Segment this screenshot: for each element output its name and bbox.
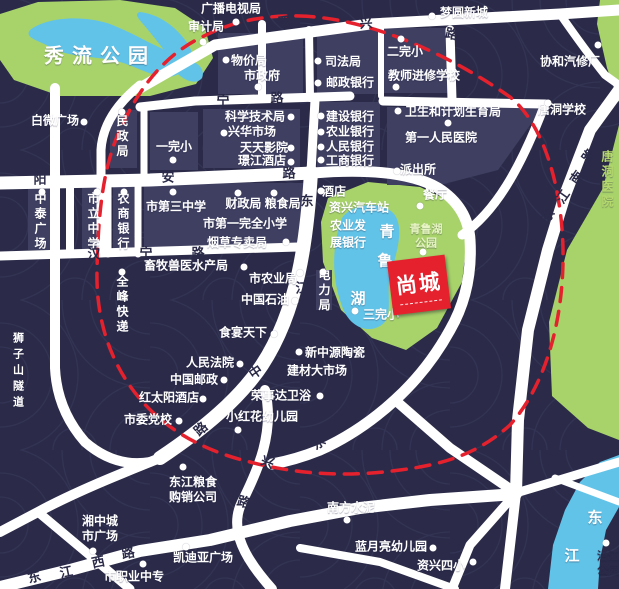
label-hongtaiyang-hotel: 红太阳酒店 [139,391,199,406]
label-jiudian: 酒店 [322,185,346,200]
road-name-char-晋-0: 晋 [276,11,292,32]
shangcheng-logo-badge: 尚城 [387,255,451,316]
road-name-char-路-18: 路 [120,542,136,563]
road-name-char-路-4: 路 [270,88,283,107]
road-name-char-路-14: 路 [189,417,211,440]
poi-dot-42 [237,361,244,368]
label-zixing-no4-primary: 资兴四小 [417,559,465,574]
poi-dot-24 [318,157,325,164]
label-kaidiya-plaza: 凯迪亚广场 [173,551,233,566]
label-shiwei-dangxiao: 市委党校 [124,413,172,428]
poi-dot-1 [200,39,207,46]
poi-dot-46 [296,349,303,356]
shangcheng-logo-text: 尚城 [394,265,443,300]
poi-dot-26 [94,189,101,196]
poi-dot-36 [320,269,327,276]
road-name-char-路-10: 路 [191,243,204,262]
poi-dot-52 [140,561,147,568]
road-name-char-安-6: 安 [161,167,174,186]
poi-dot-3 [81,119,88,126]
label-weisheng-jihua: 卫生和计划生育局 [405,105,501,120]
poi-dot-29 [235,190,242,197]
label-river-char-dong: 东 [587,510,602,529]
label-shizhiye-zhongzhuan: 市职业中专 [104,570,164,585]
road-name-char-宁-9: 宁 [139,243,152,262]
road-name-char-江-16: 江 [58,560,75,581]
label-xiehe-qixiuchang: 协和汽修厂 [540,55,600,70]
poi-dot-38 [352,308,359,315]
label-zhanyinhang: 展银行 [330,236,366,251]
road-name-char-中-13: 中 [244,359,266,382]
label-no1-primary: 市第一完全小学 [203,217,287,232]
label-shizhengfu: 市政府 [244,69,280,84]
label-shi-nongyeju: 市农业局 [249,272,297,287]
label-mengyuan-xincheng: 梦圆新城 [440,6,488,21]
label-rongshida-weiyu: 荣事达卫浴 [251,389,311,404]
label-lake-char-qing: 青 [379,224,394,243]
label-xiaohonghua-kindergarten: 小红花幼儿园 [226,410,298,425]
road-name-char-东-11: 东 [300,191,313,210]
poi-dot-34 [297,270,304,277]
road-name-char-江-21: 江 [550,185,573,207]
poi-dot-56 [603,540,610,547]
label-renmin-court: 人民法院 [186,356,234,371]
road-name-char-汉-8: 汉 [87,244,100,263]
poi-dot-0 [233,19,240,26]
road-name-char-路-2: 路 [444,22,461,43]
label-wujiaju: 物价局 [231,54,267,69]
label-xinzhongyuan-taoci: 新中源陶瓷 [305,346,365,361]
label-erwanxiao: 二完小 [387,45,423,60]
poi-dot-7 [255,84,262,91]
poi-dot-20 [288,159,295,166]
poi-dot-22 [318,129,325,136]
poi-dot-5 [170,157,177,164]
label-shizishan-tunnel: 狮子山隧道 [12,332,23,412]
poi-dot-30 [271,190,278,197]
poi-dot-21 [318,113,325,120]
road-name-char-路-19: 路 [576,144,599,166]
label-nongshang-bank: 农商银行 [117,192,129,252]
label-nongyefa: 农业发 [330,219,366,234]
road-name-char-路-24: 路 [235,490,252,512]
poi-dot-17 [288,114,295,121]
poi-dot-54 [430,545,437,552]
road-name-char-东-25: 东 [307,430,329,453]
label-yiwanxiao: 一完小 [156,140,192,155]
road-name-char-江-12: 江 [295,278,308,297]
label-yanjiang-park: 沿江 公园 [597,550,619,578]
label-nongye-bank: 农业银行 [326,125,374,140]
poi-dot-4 [119,109,126,116]
poi-dot-49 [180,464,187,471]
city-map: 秀流公园广播电视局审计局梦圆新城物价局市政府司法局邮政银行二完小教师进修学校协和… [0,0,619,589]
label-xiuliu-park: 秀流公园 [44,45,156,70]
poi-dot-27 [121,189,128,196]
poi-dot-47 [317,393,324,400]
label-zhongguo-shiyou: 中国石油 [241,293,289,308]
poi-dot-43 [221,377,228,384]
label-quanfeng-express: 全峰快递 [116,275,128,335]
label-xinghua-market: 兴华市场 [228,125,276,140]
label-paichusuo: 派出所 [400,163,436,178]
label-river-char-jiang: 江 [564,548,579,567]
label-zixing-bus-station: 资兴汽车站 [329,201,389,216]
label-jingjiang-hotel: 璟江酒店 [238,154,286,169]
poi-dot-28 [170,189,177,196]
poi-dot-31 [283,239,290,246]
poi-dot-18 [221,130,228,137]
road-name-char-兴-1: 兴 [359,12,373,32]
poi-dot-2 [429,13,436,20]
poi-dot-13 [545,100,552,107]
poi-dot-15 [445,120,452,127]
label-shiyan-tianxia: 食宴天下 [219,326,267,341]
poi-dot-16 [394,168,401,175]
label-xumu-shouyi: 畜牧兽医水产局 [144,259,228,274]
poi-dot-50 [90,548,97,555]
label-gongshang-bank: 工商银行 [326,154,374,169]
label-sifaju: 司法局 [325,55,361,70]
poi-dot-55 [470,559,477,566]
poi-dot-33 [119,269,126,276]
poi-dot-9 [315,80,322,87]
poi-dot-41 [417,203,424,210]
poi-dot-14 [395,108,402,115]
label-no3-middle-school: 市第三中学 [146,200,206,215]
poi-dot-12 [595,42,602,49]
poi-dot-44 [200,396,207,403]
label-tangdong-hospital: 唐洞医院 [601,150,613,210]
road-name-char-兴-23: 兴 [259,450,278,472]
poi-dot-6 [223,57,230,64]
label-jianshe-bank: 建设银行 [326,110,374,125]
label-jiaoshi-school: 教师进修学校 [388,69,460,84]
label-diyi-hospital: 第一人民医院 [405,131,477,146]
poi-dot-45 [176,418,183,425]
label-renmin-bank: 人民银行 [326,140,374,155]
label-xiangzhong-plaza: 湘中城 市广场 [82,514,118,544]
label-dongjiang-grain: 东江粮食 购销公司 [169,475,217,505]
label-baiwei-plaza: 白微广场 [31,114,79,129]
poi-dot-53 [344,517,351,524]
poi-dot-51 [183,544,190,551]
poi-dot-8 [315,58,322,65]
poi-dot-35 [292,298,299,305]
poi-dot-37 [271,331,278,338]
poi-dot-11 [393,84,400,91]
label-yancao-zhuanmaiju: 烟草专卖局 [207,236,267,251]
label-guangbo-dianshiju: 广播电视局 [201,2,261,17]
road-name-char-东-15: 东 [25,565,42,587]
labels-layer: 秀流公园广播电视局审计局梦圆新城物价局市政府司法局邮政银行二完小教师进修学校协和… [0,0,619,589]
road-name-char-东-22: 东 [535,204,558,226]
poi-dot-25 [39,189,46,196]
poi-dot-39 [318,188,325,195]
label-canting: 餐厅 [423,188,447,203]
poi-dot-19 [288,145,295,152]
label-lanyueliang-kindergarten: 蓝月亮幼儿园 [355,540,427,555]
poi-dot-48 [235,427,242,434]
poi-dot-40 [420,249,427,256]
shangcheng-logo-subline [400,299,442,305]
label-qingluhu-park: 青鲁湖 公园 [410,223,443,251]
poi-dot-10 [398,36,405,43]
label-minzhengju: 民政局 [116,115,128,160]
label-nanfang-shuini: 南方水泥 [327,501,375,516]
road-name-char-宁-3: 宁 [216,91,229,110]
road-name-char-南-20: 南 [564,166,587,188]
label-shenjiju: 审计局 [188,20,224,35]
label-caizhengju-liangshiju: 财政局 粮食局 [225,197,300,212]
poi-dot-23 [318,144,325,151]
label-zhongtai-plaza: 中泰广场 [34,192,46,252]
road-name-char-阳-5: 阳 [33,169,46,188]
label-youzheng-bank: 邮政银行 [326,76,374,91]
label-kexue-jishuju: 科学技术局 [225,110,285,125]
label-jiancai-market: 建材大市场 [287,364,347,379]
poi-dot-32 [241,264,248,271]
label-zhongguo-youzheng: 中国邮政 [170,373,218,388]
